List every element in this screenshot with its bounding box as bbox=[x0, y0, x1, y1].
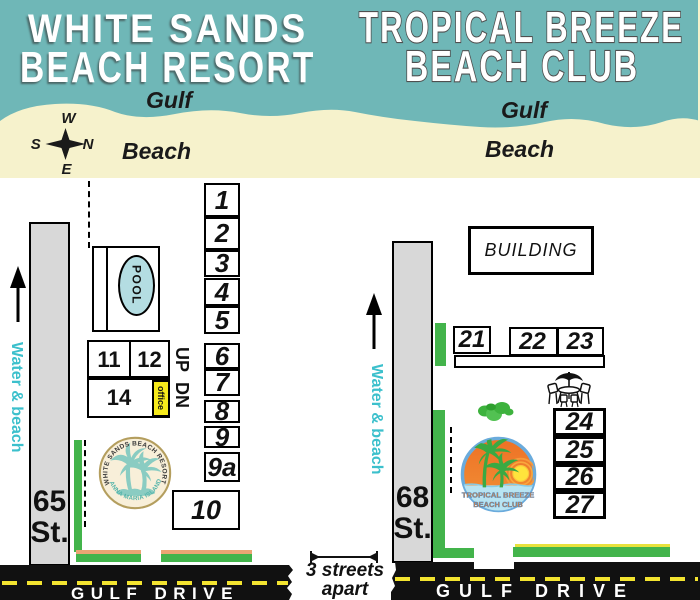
svg-text:W: W bbox=[61, 110, 77, 127]
svg-text:E: E bbox=[61, 161, 72, 178]
svg-text:S: S bbox=[31, 136, 41, 153]
svg-text:TROPICAL BREEZE: TROPICAL BREEZE bbox=[462, 491, 534, 500]
svg-text:BEACH CLUB: BEACH CLUB bbox=[473, 500, 523, 509]
svg-text:N: N bbox=[83, 136, 95, 153]
